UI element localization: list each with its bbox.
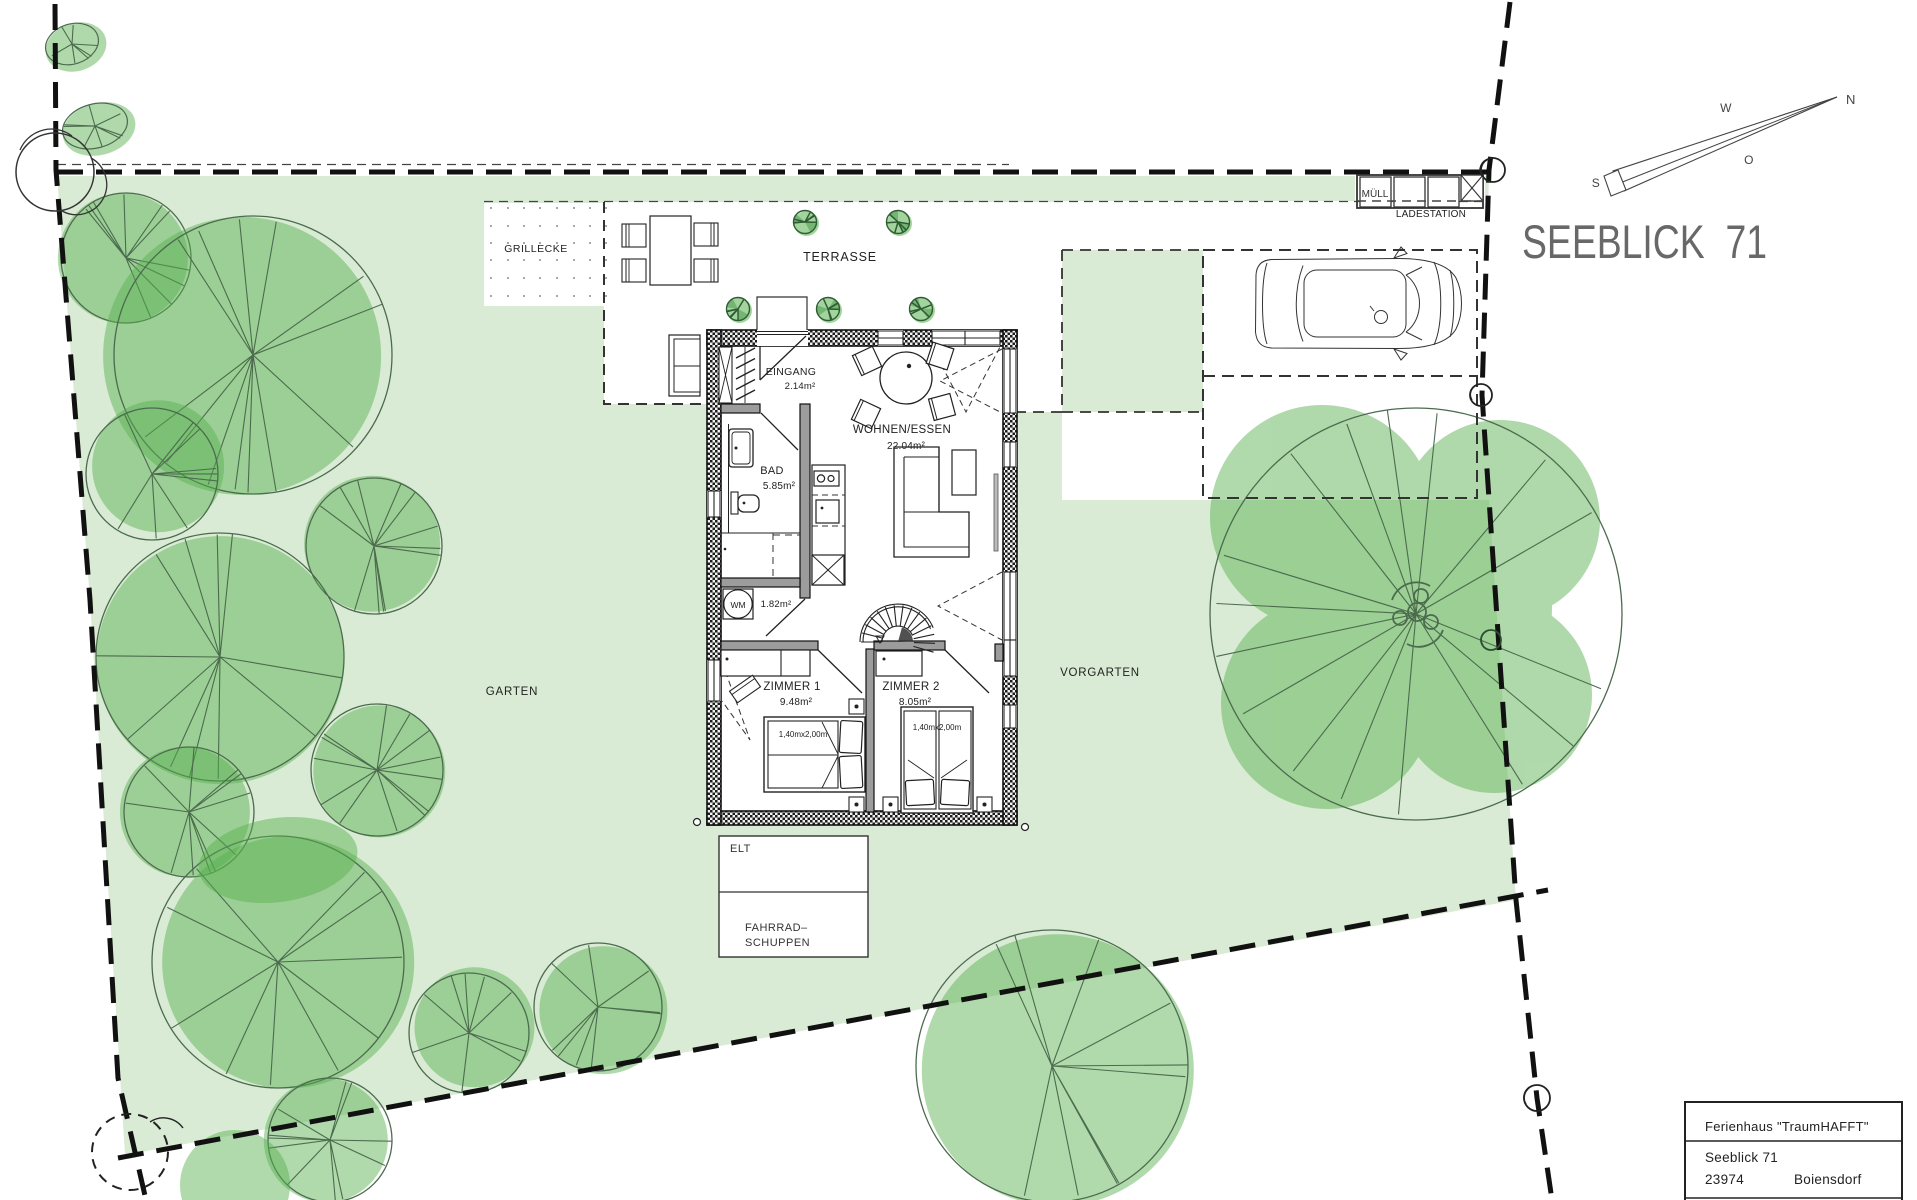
svg-text:BAD: BAD (760, 465, 784, 477)
svg-text:23974: 23974 (1705, 1172, 1744, 1187)
svg-text:MÜLL: MÜLL (1362, 188, 1389, 200)
svg-text:WOHNEN/ESSEN: WOHNEN/ESSEN (853, 424, 951, 436)
svg-text:FAHRRAD–: FAHRRAD– (745, 922, 808, 934)
svg-text:ZIMMER 1: ZIMMER 1 (763, 681, 820, 693)
svg-text:8.05m²: 8.05m² (899, 697, 932, 708)
svg-text:VORGARTEN: VORGARTEN (1060, 667, 1140, 679)
svg-text:1.82m²: 1.82m² (761, 599, 792, 610)
svg-text:O: O (1744, 153, 1754, 167)
svg-text:Boiensdorf: Boiensdorf (1794, 1172, 1862, 1187)
svg-text:GARTEN: GARTEN (486, 686, 539, 698)
svg-text:TERRASSE: TERRASSE (803, 250, 877, 264)
svg-text:Ferienhaus "TraumHAFFT": Ferienhaus "TraumHAFFT" (1705, 1119, 1869, 1134)
svg-text:22.04m²: 22.04m² (887, 441, 926, 452)
svg-text:ZIMMER 2: ZIMMER 2 (882, 681, 939, 693)
svg-text:EINGANG: EINGANG (766, 366, 817, 378)
svg-text:S: S (1592, 176, 1601, 190)
svg-text:ELT: ELT (730, 843, 751, 855)
svg-text:SCHUPPEN: SCHUPPEN (745, 937, 810, 949)
svg-text:1,40mx2,00m: 1,40mx2,00m (779, 730, 828, 739)
svg-text:2.14m²: 2.14m² (785, 381, 816, 392)
svg-text:W: W (1720, 101, 1732, 115)
svg-text:WM: WM (730, 600, 745, 610)
svg-text:5.85m²: 5.85m² (763, 481, 796, 492)
svg-text:GRILLECKE: GRILLECKE (504, 243, 567, 255)
svg-text:Seeblick 71: Seeblick 71 (1705, 1150, 1778, 1165)
svg-text:SEEBLICK 71: SEEBLICK 71 (1522, 215, 1767, 268)
svg-text:1,40mx2,00m: 1,40mx2,00m (913, 723, 962, 732)
svg-text:9.48m²: 9.48m² (780, 697, 813, 708)
svg-text:N: N (1846, 92, 1856, 107)
svg-text:LADESTATION: LADESTATION (1396, 209, 1466, 220)
